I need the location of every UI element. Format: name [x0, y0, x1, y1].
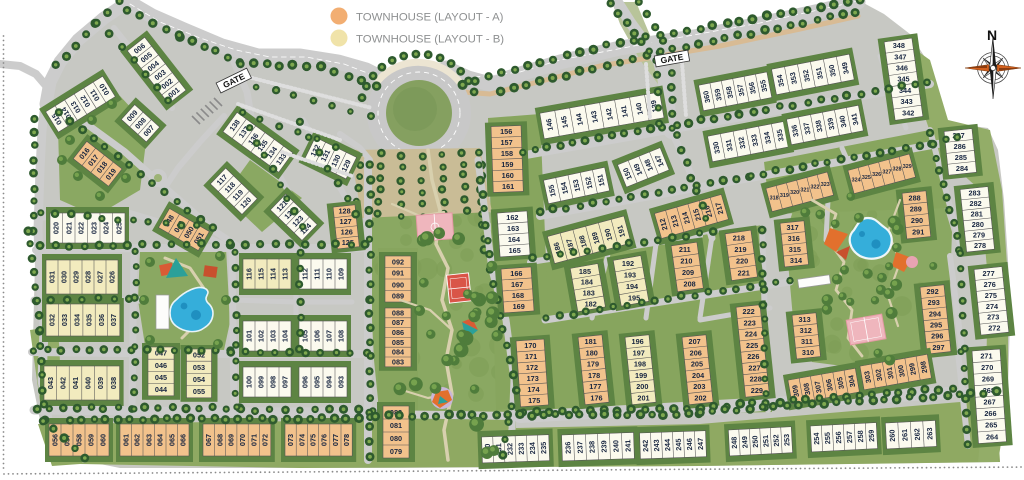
svg-text:038: 038 [109, 377, 118, 389]
svg-text:167: 167 [511, 280, 523, 289]
svg-text:026: 026 [108, 271, 117, 283]
svg-text:068: 068 [216, 434, 225, 446]
svg-text:165: 165 [509, 246, 521, 255]
svg-text:238: 238 [587, 441, 596, 453]
svg-text:169: 169 [513, 302, 525, 311]
svg-text:347: 347 [894, 52, 906, 61]
svg-text:128: 128 [338, 207, 350, 216]
svg-text:254: 254 [812, 431, 822, 445]
svg-text:249: 249 [740, 436, 750, 449]
svg-text:202: 202 [694, 393, 706, 402]
svg-text:198: 198 [634, 360, 646, 369]
svg-text:205: 205 [691, 360, 703, 369]
svg-text:226: 226 [747, 352, 759, 361]
svg-text:265: 265 [985, 421, 997, 430]
svg-text:098: 098 [269, 376, 278, 388]
svg-text:111: 111 [313, 268, 322, 279]
svg-text:225: 225 [746, 341, 758, 350]
svg-text:273: 273 [987, 313, 999, 322]
svg-text:035: 035 [85, 314, 94, 326]
svg-text:313: 313 [798, 315, 810, 324]
svg-text:294: 294 [929, 309, 942, 318]
svg-text:279: 279 [973, 230, 985, 239]
svg-text:260: 260 [887, 429, 897, 442]
svg-text:262: 262 [912, 428, 922, 441]
svg-text:269: 269 [982, 374, 994, 383]
svg-text:TOWNHOUSE (LAYOUT - B): TOWNHOUSE (LAYOUT - B) [356, 34, 504, 46]
svg-text:071: 071 [249, 434, 258, 446]
svg-text:276: 276 [984, 280, 996, 289]
svg-text:074: 074 [297, 433, 306, 446]
svg-text:114: 114 [269, 267, 278, 280]
svg-text:156: 156 [500, 127, 512, 136]
svg-text:296: 296 [931, 332, 943, 341]
svg-text:280: 280 [972, 220, 984, 229]
svg-text:091: 091 [392, 269, 404, 278]
svg-text:072: 072 [261, 434, 270, 446]
svg-text:075: 075 [309, 434, 318, 446]
svg-text:206: 206 [690, 348, 702, 357]
svg-text:245: 245 [674, 438, 683, 450]
svg-text:166: 166 [510, 269, 522, 278]
svg-text:088: 088 [392, 308, 404, 317]
svg-text:109: 109 [337, 268, 346, 280]
svg-text:342: 342 [902, 108, 914, 117]
svg-text:181: 181 [585, 337, 597, 346]
svg-text:174: 174 [527, 385, 540, 394]
svg-text:104: 104 [281, 329, 290, 342]
svg-text:311: 311 [801, 337, 813, 346]
svg-text:116: 116 [245, 268, 254, 280]
svg-text:285: 285 [955, 153, 967, 162]
svg-text:055: 055 [193, 387, 205, 396]
svg-text:099: 099 [257, 376, 266, 388]
svg-text:N: N [987, 27, 997, 43]
svg-text:210: 210 [680, 257, 692, 266]
svg-text:211: 211 [679, 245, 691, 254]
svg-text:065: 065 [167, 434, 176, 446]
svg-text:054: 054 [193, 375, 206, 384]
svg-text:044: 044 [155, 385, 168, 394]
svg-text:229: 229 [751, 386, 763, 395]
svg-text:077: 077 [331, 434, 340, 446]
svg-text:219: 219 [734, 245, 746, 254]
svg-text:087: 087 [392, 318, 404, 327]
svg-text:027: 027 [96, 271, 105, 283]
svg-text:062: 062 [133, 434, 142, 446]
svg-text:177: 177 [589, 382, 601, 391]
svg-text:193: 193 [624, 271, 636, 280]
svg-text:292: 292 [926, 287, 938, 296]
svg-text:312: 312 [800, 326, 812, 335]
svg-text:274: 274 [986, 302, 999, 311]
svg-text:235: 235 [539, 442, 548, 454]
svg-text:295: 295 [930, 320, 942, 329]
svg-text:324: 324 [852, 178, 861, 184]
svg-text:170: 170 [524, 341, 536, 350]
svg-text:290: 290 [911, 216, 923, 225]
svg-text:056: 056 [51, 434, 60, 446]
svg-text:184: 184 [581, 278, 594, 287]
svg-text:247: 247 [696, 438, 705, 450]
svg-text:164: 164 [508, 235, 521, 244]
svg-text:293: 293 [928, 298, 940, 307]
svg-text:032: 032 [48, 314, 57, 326]
svg-text:236: 236 [563, 442, 572, 454]
svg-text:284: 284 [956, 164, 969, 173]
svg-text:327: 327 [882, 169, 891, 175]
svg-text:046: 046 [155, 361, 167, 370]
svg-text:041: 041 [71, 377, 80, 389]
svg-text:029: 029 [72, 271, 81, 283]
svg-text:178: 178 [588, 371, 600, 380]
svg-text:257: 257 [845, 431, 855, 444]
svg-text:113: 113 [281, 268, 290, 280]
svg-text:277: 277 [982, 269, 994, 278]
svg-text:314: 314 [790, 256, 803, 265]
svg-text:343: 343 [901, 97, 913, 106]
svg-text:115: 115 [257, 268, 266, 280]
svg-text:022: 022 [77, 222, 86, 234]
svg-text:070: 070 [238, 434, 247, 446]
svg-text:043: 043 [46, 377, 55, 389]
svg-text:020: 020 [52, 222, 61, 234]
svg-text:183: 183 [583, 289, 595, 298]
svg-text:090: 090 [392, 280, 404, 289]
svg-text:024: 024 [102, 221, 111, 234]
svg-text:199: 199 [635, 371, 647, 380]
svg-text:103: 103 [269, 330, 278, 342]
svg-text:253: 253 [782, 434, 792, 447]
svg-text:061: 061 [121, 434, 130, 446]
svg-text:267: 267 [984, 398, 996, 407]
svg-text:158: 158 [501, 149, 513, 158]
svg-text:172: 172 [526, 363, 538, 372]
svg-text:320: 320 [790, 190, 799, 196]
svg-text:241: 241 [623, 439, 632, 451]
svg-text:126: 126 [341, 228, 353, 237]
svg-text:058: 058 [75, 434, 84, 446]
svg-text:060: 060 [99, 434, 108, 446]
svg-text:096: 096 [301, 376, 310, 388]
svg-text:106: 106 [313, 330, 322, 342]
svg-text:322: 322 [811, 185, 820, 191]
svg-text:067: 067 [204, 434, 213, 446]
svg-text:031: 031 [48, 271, 57, 283]
svg-text:325: 325 [862, 175, 871, 181]
svg-text:246: 246 [685, 438, 694, 450]
svg-text:084: 084 [392, 348, 405, 357]
svg-text:319: 319 [780, 193, 789, 199]
svg-text:228: 228 [750, 375, 762, 384]
svg-text:223: 223 [744, 318, 756, 327]
svg-text:168: 168 [512, 291, 524, 300]
svg-text:222: 222 [743, 307, 755, 316]
svg-text:258: 258 [856, 430, 866, 443]
svg-text:025: 025 [114, 222, 123, 234]
svg-text:182: 182 [585, 299, 597, 308]
svg-text:270: 270 [981, 363, 993, 372]
svg-text:321: 321 [800, 187, 809, 193]
svg-text:108: 108 [337, 330, 346, 342]
svg-text:288: 288 [909, 193, 921, 202]
svg-text:203: 203 [693, 382, 705, 391]
svg-text:101: 101 [245, 330, 254, 342]
svg-text:023: 023 [89, 222, 98, 234]
svg-text:329: 329 [903, 164, 912, 170]
svg-text:160: 160 [502, 171, 514, 180]
svg-text:163: 163 [507, 224, 519, 233]
svg-text:197: 197 [633, 348, 645, 357]
svg-text:348: 348 [893, 41, 905, 50]
svg-text:346: 346 [896, 63, 908, 72]
svg-text:085: 085 [392, 338, 404, 347]
svg-text:033: 033 [60, 314, 69, 326]
svg-text:097: 097 [281, 376, 290, 388]
svg-text:259: 259 [867, 430, 877, 443]
svg-text:079: 079 [390, 447, 402, 456]
svg-text:076: 076 [320, 434, 329, 446]
svg-text:208: 208 [684, 280, 696, 289]
svg-text:069: 069 [227, 434, 236, 446]
svg-text:204: 204 [692, 371, 705, 380]
svg-text:326: 326 [872, 172, 881, 178]
svg-text:045: 045 [155, 373, 167, 382]
svg-text:248: 248 [729, 436, 739, 449]
svg-text:173: 173 [527, 374, 539, 383]
svg-text:081: 081 [390, 421, 402, 430]
svg-text:037: 037 [109, 314, 118, 326]
svg-text:251: 251 [761, 435, 771, 448]
svg-text:266: 266 [984, 409, 996, 418]
svg-text:242: 242 [641, 440, 650, 452]
svg-text:080: 080 [390, 434, 402, 443]
svg-text:318: 318 [770, 196, 779, 202]
svg-text:086: 086 [392, 328, 404, 337]
svg-text:221: 221 [738, 268, 750, 277]
svg-text:100: 100 [245, 376, 254, 388]
svg-text:162: 162 [506, 213, 518, 222]
svg-text:064: 064 [156, 433, 165, 446]
svg-text:218: 218 [733, 233, 745, 242]
svg-text:316: 316 [788, 234, 800, 243]
svg-text:264: 264 [986, 432, 999, 441]
svg-text:039: 039 [96, 377, 105, 389]
svg-text:095: 095 [313, 376, 322, 388]
svg-text:224: 224 [745, 330, 758, 339]
svg-text:066: 066 [179, 434, 188, 446]
svg-text:310: 310 [802, 348, 814, 357]
svg-text:042: 042 [58, 377, 67, 389]
svg-text:089: 089 [392, 292, 404, 301]
svg-text:272: 272 [988, 324, 1000, 333]
svg-text:110: 110 [325, 268, 334, 280]
svg-text:040: 040 [84, 377, 93, 389]
svg-text:278: 278 [974, 241, 986, 250]
svg-text:201: 201 [637, 393, 649, 402]
svg-text:102: 102 [257, 330, 266, 342]
svg-text:179: 179 [587, 360, 599, 369]
svg-text:256: 256 [834, 431, 844, 444]
svg-text:185: 185 [579, 267, 591, 276]
svg-text:282: 282 [970, 199, 982, 208]
svg-text:036: 036 [97, 314, 106, 326]
svg-text:297: 297 [932, 343, 944, 352]
svg-text:028: 028 [84, 271, 93, 283]
svg-text:286: 286 [954, 142, 966, 151]
svg-text:107: 107 [325, 330, 334, 342]
svg-text:233: 233 [516, 442, 525, 454]
svg-text:207: 207 [689, 337, 701, 346]
svg-text:227: 227 [748, 363, 760, 372]
svg-text:220: 220 [736, 257, 748, 266]
svg-text:176: 176 [590, 393, 602, 402]
svg-text:261: 261 [900, 429, 910, 442]
svg-text:194: 194 [626, 282, 639, 291]
svg-text:083: 083 [392, 357, 404, 366]
svg-text:063: 063 [144, 434, 153, 446]
svg-text:291: 291 [912, 227, 924, 236]
svg-text:021: 021 [64, 222, 73, 234]
svg-text:275: 275 [985, 291, 997, 300]
svg-text:271: 271 [980, 351, 992, 360]
svg-text:328: 328 [893, 167, 902, 173]
svg-text:092: 092 [392, 257, 404, 266]
svg-text:323: 323 [821, 182, 830, 188]
svg-text:317: 317 [786, 223, 798, 232]
svg-text:TOWNHOUSE (LAYOUT - A): TOWNHOUSE (LAYOUT - A) [356, 12, 504, 24]
svg-text:192: 192 [622, 259, 634, 268]
svg-text:094: 094 [325, 375, 334, 388]
svg-text:244: 244 [663, 438, 672, 451]
svg-text:073: 073 [286, 434, 295, 446]
svg-text:127: 127 [340, 217, 352, 226]
svg-text:030: 030 [60, 271, 69, 283]
svg-text:239: 239 [599, 440, 608, 452]
svg-text:263: 263 [925, 427, 935, 440]
svg-text:053: 053 [193, 363, 205, 372]
svg-text:171: 171 [525, 352, 537, 361]
svg-text:209: 209 [682, 268, 694, 277]
svg-text:078: 078 [342, 434, 351, 446]
svg-text:093: 093 [337, 376, 346, 388]
svg-text:237: 237 [575, 441, 584, 453]
svg-text:250: 250 [750, 435, 760, 448]
svg-text:159: 159 [501, 160, 513, 169]
svg-text:289: 289 [910, 205, 922, 214]
svg-text:059: 059 [87, 434, 96, 446]
svg-text:157: 157 [500, 138, 512, 147]
svg-text:283: 283 [968, 189, 980, 198]
svg-text:315: 315 [789, 245, 801, 254]
svg-text:200: 200 [636, 382, 648, 391]
svg-text:034: 034 [72, 313, 81, 326]
svg-text:255: 255 [823, 432, 833, 445]
svg-text:161: 161 [502, 182, 514, 191]
svg-text:175: 175 [528, 396, 540, 405]
svg-text:243: 243 [652, 439, 661, 451]
svg-text:281: 281 [971, 210, 983, 219]
svg-text:252: 252 [771, 434, 781, 447]
svg-text:234: 234 [528, 441, 537, 454]
svg-text:196: 196 [632, 337, 644, 346]
svg-text:240: 240 [611, 440, 620, 452]
svg-text:180: 180 [586, 348, 598, 357]
